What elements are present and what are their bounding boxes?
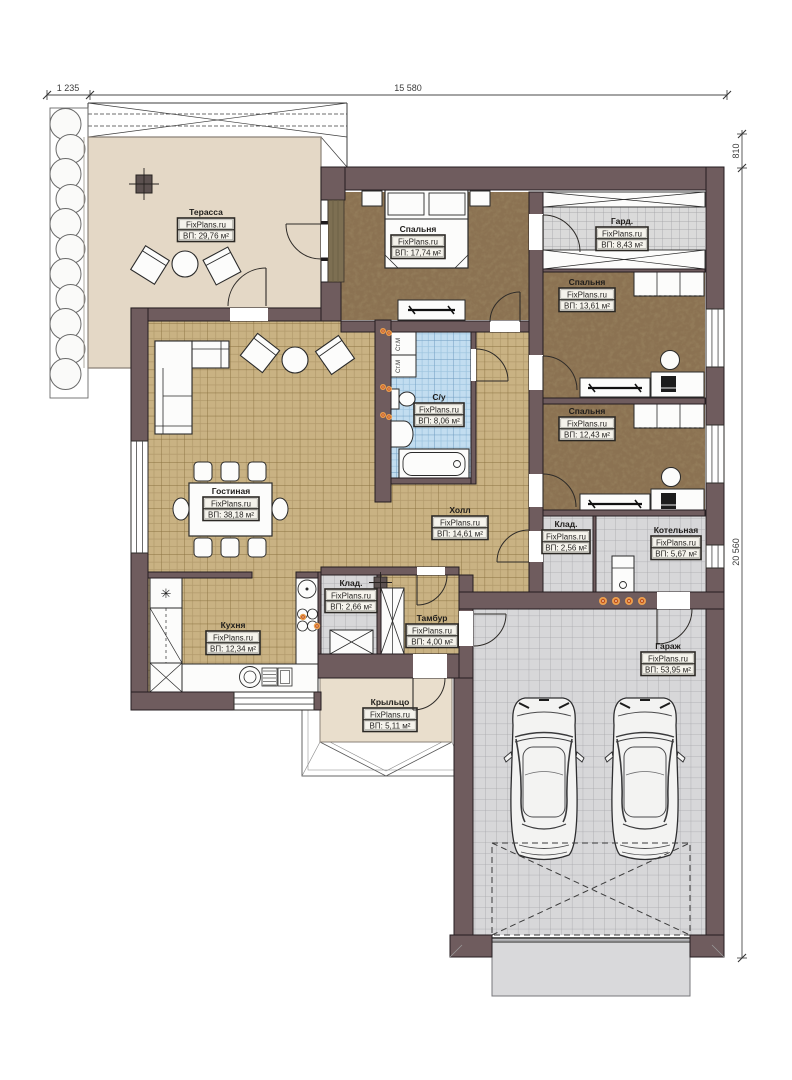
svg-text:ВП: 17,74 м²: ВП: 17,74 м² (395, 249, 441, 258)
svg-text:ВП: 13,61 м²: ВП: 13,61 м² (564, 302, 610, 311)
svg-text:FixPlans.ru: FixPlans.ru (211, 500, 251, 509)
svg-text:15 580: 15 580 (394, 83, 422, 93)
svg-text:ВП: 5,67 м²: ВП: 5,67 м² (655, 550, 697, 559)
svg-text:Ст.М: Ст.М (396, 360, 402, 373)
svg-text:Клад.: Клад. (339, 578, 362, 588)
svg-text:FixPlans.ru: FixPlans.ru (331, 592, 371, 601)
svg-text:Гард.: Гард. (611, 216, 633, 226)
svg-text:1 235: 1 235 (57, 83, 80, 93)
svg-text:С/у: С/у (432, 392, 446, 402)
svg-text:FixPlans.ru: FixPlans.ru (546, 533, 586, 542)
svg-text:ВП: 8,06 м²: ВП: 8,06 м² (418, 417, 460, 426)
svg-text:810: 810 (731, 143, 741, 158)
svg-text:FixPlans.ru: FixPlans.ru (567, 291, 607, 300)
svg-text:FixPlans.ru: FixPlans.ru (440, 519, 480, 528)
svg-text:ВП: 14,61 м²: ВП: 14,61 м² (437, 530, 483, 539)
svg-text:Терасса: Терасса (189, 207, 223, 217)
svg-text:ВП: 2,66 м²: ВП: 2,66 м² (330, 603, 372, 612)
svg-text:Крыльцо: Крыльцо (371, 697, 410, 707)
svg-text:ВП: 38,18 м²: ВП: 38,18 м² (208, 511, 254, 520)
svg-text:Гараж: Гараж (655, 641, 681, 651)
svg-text:Спальня: Спальня (400, 224, 437, 234)
svg-text:Клад.: Клад. (554, 519, 577, 529)
svg-text:FixPlans.ru: FixPlans.ru (370, 711, 410, 720)
svg-text:FixPlans.ru: FixPlans.ru (213, 634, 253, 643)
svg-text:✳: ✳ (161, 586, 172, 601)
svg-text:FixPlans.ru: FixPlans.ru (567, 420, 607, 429)
svg-text:ВП: 29,76 м²: ВП: 29,76 м² (183, 232, 229, 241)
svg-text:ВП: 12,43 м²: ВП: 12,43 м² (564, 431, 610, 440)
svg-text:ВП: 2,56 м²: ВП: 2,56 м² (545, 544, 587, 553)
svg-text:FixPlans.ru: FixPlans.ru (398, 238, 438, 247)
svg-text:Холл: Холл (449, 505, 470, 515)
svg-text:FixPlans.ru: FixPlans.ru (656, 539, 696, 548)
svg-text:FixPlans.ru: FixPlans.ru (602, 230, 642, 239)
svg-text:ВП: 53,95 м²: ВП: 53,95 м² (645, 666, 691, 675)
svg-text:FixPlans.ru: FixPlans.ru (648, 655, 688, 664)
svg-text:Тамбур: Тамбур (417, 613, 448, 623)
svg-text:ВП: 8,43 м²: ВП: 8,43 м² (601, 241, 643, 250)
svg-text:Котельная: Котельная (654, 525, 699, 535)
svg-text:FixPlans.ru: FixPlans.ru (412, 627, 452, 636)
svg-text:ВП: 5,11 м²: ВП: 5,11 м² (370, 722, 411, 731)
svg-text:20 560: 20 560 (731, 538, 741, 566)
svg-text:Спальня: Спальня (569, 406, 606, 416)
svg-text:Гостиная: Гостиная (212, 486, 250, 496)
svg-text:FixPlans.ru: FixPlans.ru (186, 221, 226, 230)
svg-text:Спальня: Спальня (569, 277, 606, 287)
svg-text:ВП: 4,00 м²: ВП: 4,00 м² (411, 638, 453, 647)
svg-text:Ст.М: Ст.М (396, 338, 402, 351)
svg-text:Кухня: Кухня (221, 620, 246, 630)
svg-text:FixPlans.ru: FixPlans.ru (419, 406, 459, 415)
svg-text:ВП: 12,34 м²: ВП: 12,34 м² (210, 645, 256, 654)
